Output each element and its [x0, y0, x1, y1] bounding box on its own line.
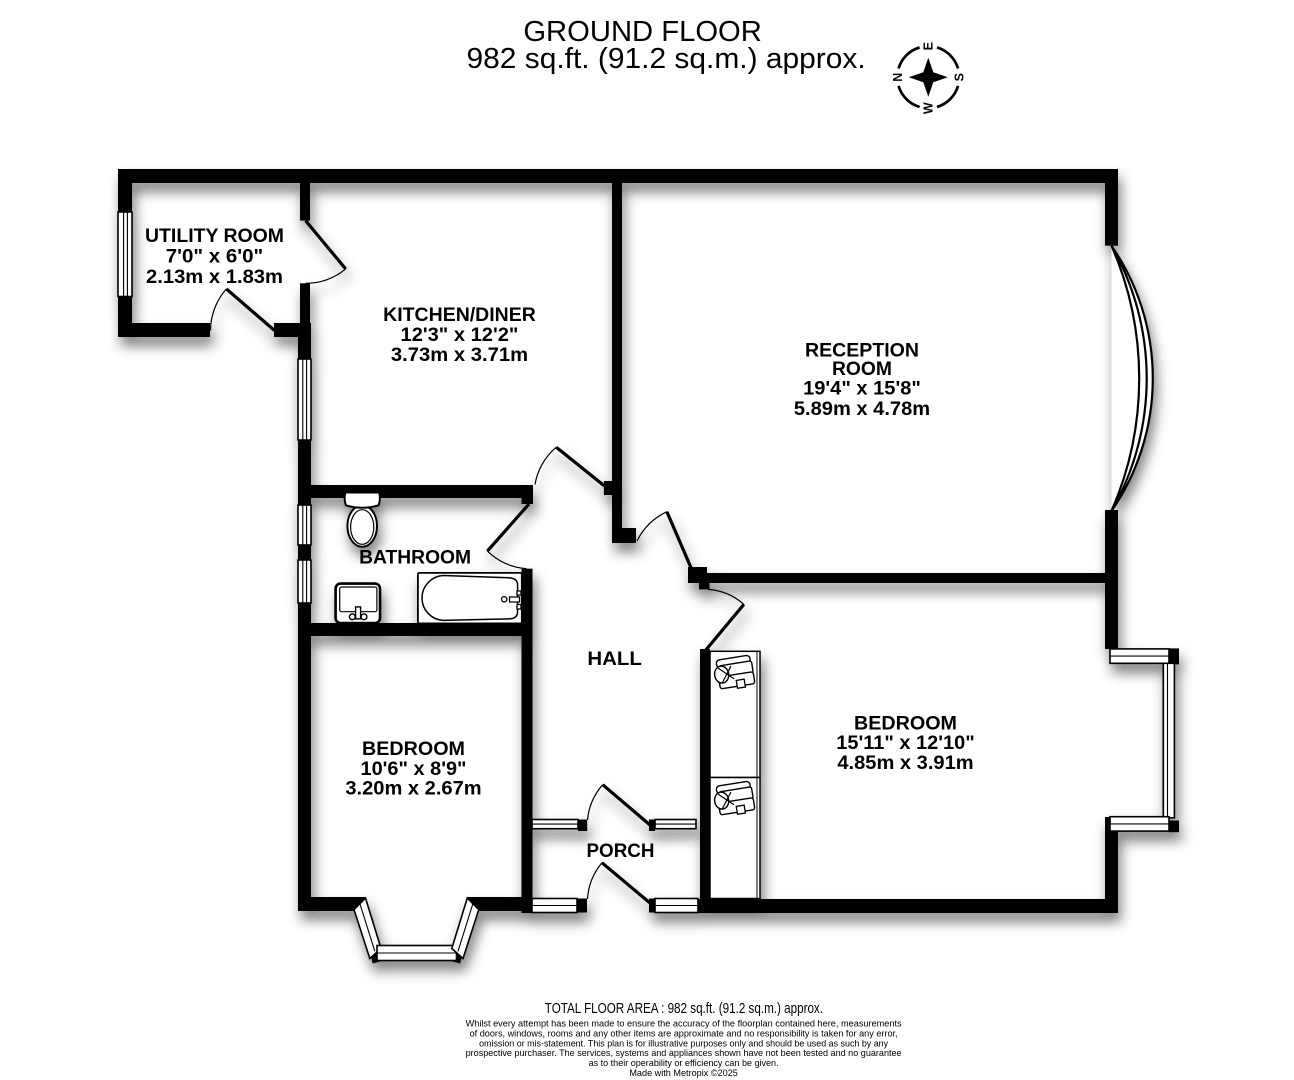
svg-text:KITCHEN/DINER: KITCHEN/DINER	[383, 305, 536, 326]
svg-text:UTILITY ROOM: UTILITY ROOM	[145, 226, 284, 247]
svg-text:BATHROOM: BATHROOM	[359, 548, 471, 569]
svg-text:4.85m x 3.91m: 4.85m x 3.91m	[837, 753, 973, 774]
svg-text:N: N	[891, 73, 905, 82]
svg-text:Made with Metropix ©2025: Made with Metropix ©2025	[629, 1067, 738, 1078]
svg-text:BEDROOM: BEDROOM	[362, 739, 465, 760]
svg-text:HALL: HALL	[587, 649, 642, 670]
svg-text:15'11" x 12'10": 15'11" x 12'10"	[836, 733, 974, 754]
svg-text:7'0" x 6'0": 7'0" x 6'0"	[166, 247, 264, 268]
svg-text:E: E	[922, 42, 936, 50]
svg-text:2.13m x 1.83m: 2.13m x 1.83m	[146, 267, 283, 288]
svg-text:19'4" x 15'8": 19'4" x 15'8"	[803, 379, 921, 400]
svg-text:5.89m x 4.78m: 5.89m x 4.78m	[794, 399, 930, 420]
svg-text:10'6" x 8'9": 10'6" x 8'9"	[361, 759, 467, 780]
svg-text:ROOM: ROOM	[832, 359, 892, 380]
svg-text:W: W	[922, 102, 936, 114]
svg-text:TOTAL FLOOR AREA : 982 sq.ft.: TOTAL FLOOR AREA : 982 sq.ft. (91.2 sq.m…	[545, 1000, 823, 1017]
svg-text:3.73m x 3.71m: 3.73m x 3.71m	[391, 345, 528, 366]
svg-text:S: S	[953, 73, 967, 81]
svg-text:12'3" x 12'2": 12'3" x 12'2"	[401, 325, 519, 346]
svg-text:PORCH: PORCH	[587, 841, 655, 862]
svg-text:982 sq.ft. (91.2 sq.m.) approx: 982 sq.ft. (91.2 sq.m.) approx.	[466, 43, 865, 75]
svg-text:3.20m x 2.67m: 3.20m x 2.67m	[345, 778, 481, 799]
svg-text:BEDROOM: BEDROOM	[854, 714, 957, 735]
